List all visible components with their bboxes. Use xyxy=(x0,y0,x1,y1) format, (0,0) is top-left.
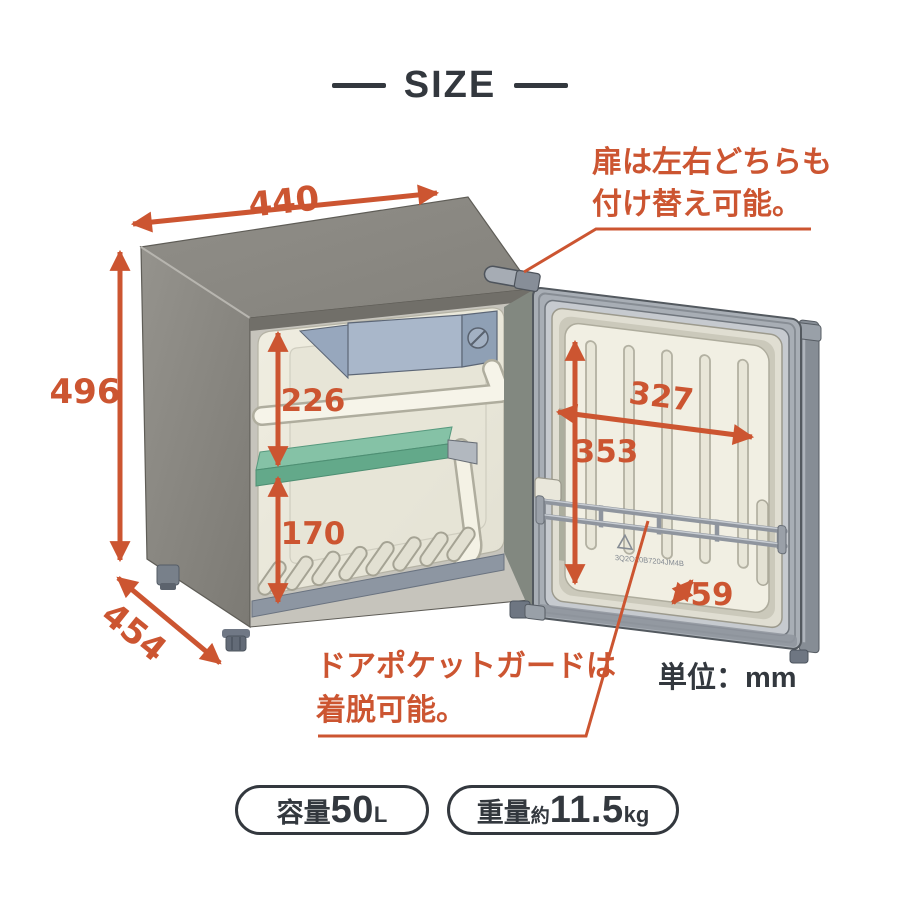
dim-label-left-height: 496 xyxy=(50,372,121,412)
hinge-note-leader xyxy=(524,229,811,272)
page: { "colors": { "accent": "#CC5531", "dark… xyxy=(0,0,900,900)
dim-label-door-height: 353 xyxy=(574,434,639,470)
weight-approx: 約 xyxy=(531,801,550,828)
door-reversible-note-line2: 付け替え可能。 xyxy=(592,190,802,220)
foot-back-left xyxy=(157,565,179,585)
dim-label-top-width: 440 xyxy=(246,178,321,225)
weight-value: 11.5 xyxy=(550,789,624,832)
cabinet xyxy=(141,197,533,651)
pocket-guard-note-line2: 着脱可能。 xyxy=(316,696,466,726)
dim-label-bottom-depth: 454 xyxy=(94,595,174,671)
weight-badge: 重量約11.5kg xyxy=(447,785,679,835)
dim-label-upper-interior: 226 xyxy=(281,383,346,419)
capacity-badge: 容量50L xyxy=(235,785,429,835)
fridge-size-diagram: 3Q2O20B7204JM4B 440 496 454 226 1 xyxy=(0,0,900,900)
door-bottom-hinge xyxy=(525,604,545,620)
capacity-prefix: 容量 xyxy=(277,788,331,838)
unit-label: 単位：mm xyxy=(658,654,797,696)
capacity-unit: L xyxy=(374,802,387,828)
dim-label-pocket-depth: 59 xyxy=(690,577,733,613)
capacity-value: 50 xyxy=(331,789,374,832)
door: 3Q2O20B7204JM4B xyxy=(525,286,821,654)
door-reversible-note-line1: 扉は左右どちらも xyxy=(592,148,832,178)
weight-prefix: 重量 xyxy=(477,788,531,838)
weight-unit: kg xyxy=(624,802,650,828)
cabinet-interior xyxy=(256,308,504,597)
dim-label-lower-interior: 170 xyxy=(281,516,346,552)
pocket-guard-note-line1: ドアポケットガードは xyxy=(316,652,616,682)
